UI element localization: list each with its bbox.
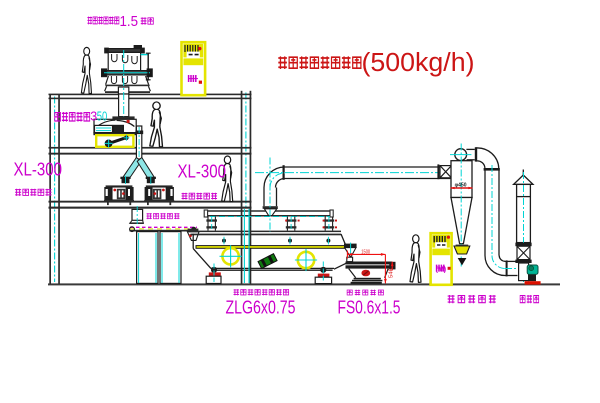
svg-text:ZLG6x0.75: ZLG6x0.75 xyxy=(226,296,296,317)
svg-text:φ450: φ450 xyxy=(455,183,467,189)
svg-text:XL-300: XL-300 xyxy=(14,159,63,180)
svg-text:XL-300: XL-300 xyxy=(178,161,227,182)
svg-text:1500: 1500 xyxy=(361,249,370,255)
svg-text:(500kg/h): (500kg/h) xyxy=(362,49,475,77)
svg-text:546: 546 xyxy=(388,268,394,278)
svg-text:1.5: 1.5 xyxy=(120,13,139,30)
svg-text:(M): (M) xyxy=(436,266,447,273)
svg-text:50: 50 xyxy=(97,110,108,124)
svg-text:FS0.6x1.5: FS0.6x1.5 xyxy=(338,296,401,317)
